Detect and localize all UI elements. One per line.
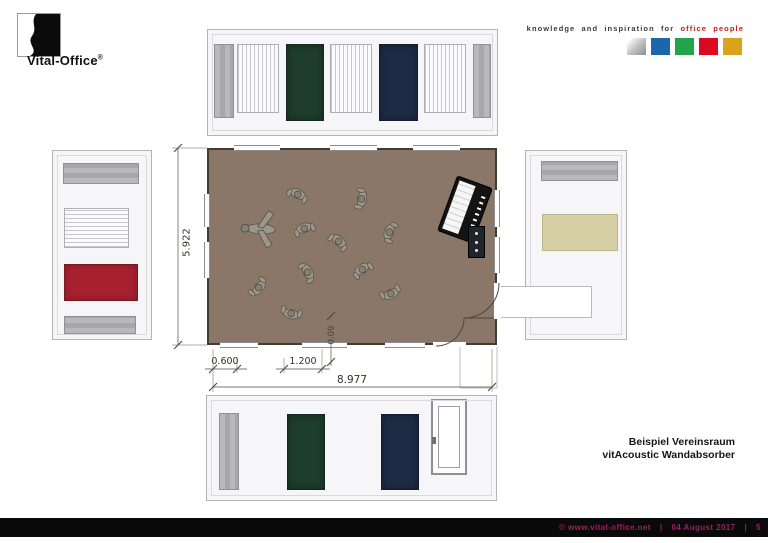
brand-name: Vital-Office [27,53,98,68]
square-gold-icon [723,38,742,55]
brand-color-squares [627,38,742,55]
dim-room-width: 8.977 [312,374,392,386]
panel-gray-left [214,44,234,118]
tagline-highlight: office people [680,24,744,33]
footer-copyright-link[interactable]: © www.vital-office.net [559,523,651,532]
dim-absorber-offset: 0.600 [200,356,250,367]
footer-page-number: 5 [756,523,761,532]
panel-slats-3 [424,44,466,113]
dim-absorber-width: 1.200 [278,356,328,367]
window-opening [302,342,347,348]
title-line-2: vitAcoustic Wandabsorber [602,449,735,462]
panel-gray-top [63,163,139,184]
panel-slats-horizontal [64,208,129,248]
panel-slats-2 [330,44,372,113]
panel-navy-absorber [381,414,419,490]
window-opening [330,145,377,151]
elevation-bottom-wall [206,395,497,501]
footer-date: 04 August 2017 [672,523,736,532]
door-panel [438,406,460,468]
panel-beige-absorber [542,214,618,251]
footer-separator: | [660,523,663,532]
window-opening [204,194,210,227]
door-handle-icon [432,437,436,444]
window-opening [234,145,280,151]
panel-gray-right [473,44,491,118]
square-green-icon [675,38,694,55]
window-opening [413,145,460,151]
window-opening [204,242,210,278]
logo-brand-text: Vital-Office® [27,53,103,68]
window-opening [385,342,425,348]
title-line-1: Beispiel Vereinsraum [602,436,735,449]
panel-gray-top [541,161,618,181]
square-blue-icon [651,38,670,55]
door-recess-outline [500,286,592,318]
logo-mark-icon [17,13,61,57]
square-red-icon [699,38,718,55]
square-silver-icon [627,38,646,55]
registered-mark: ® [98,55,103,62]
door-opening-right [494,283,501,319]
panel-gray-left [219,413,239,490]
vestibule-outline [460,347,497,388]
media-panel [468,226,485,258]
drawing-sheet: Vital-Office® knowledge and inspiration … [0,0,768,543]
panel-red-absorber [64,264,138,301]
panel-green-absorber [287,414,325,490]
window-opening [494,237,500,273]
window-opening [494,190,500,227]
panel-navy-absorber [379,44,418,121]
tagline-prefix: knowledge and inspiration for [527,24,675,33]
elevation-top-wall [207,29,498,136]
window-opening [220,342,258,348]
tagline: knowledge and inspiration for office peo… [527,24,744,33]
door-opening-bottom [433,342,466,349]
panel-green-absorber [286,44,324,121]
door-elevation [431,399,467,475]
panel-gray-bottom [64,316,136,334]
title-block: Beispiel Vereinsraum vitAcoustic Wandabs… [602,436,735,462]
vital-office-logo: Vital-Office® [17,13,137,61]
elevation-left-wall [52,150,152,340]
dim-absorber-thickness: 0.09 [327,313,337,357]
footer-bar: © www.vital-office.net | 04 August 2017 … [0,518,768,537]
floor-plan [207,148,497,345]
footer-separator: | [745,523,748,532]
dim-room-depth: 5.922 [182,220,193,266]
panel-slats-1 [237,44,279,113]
